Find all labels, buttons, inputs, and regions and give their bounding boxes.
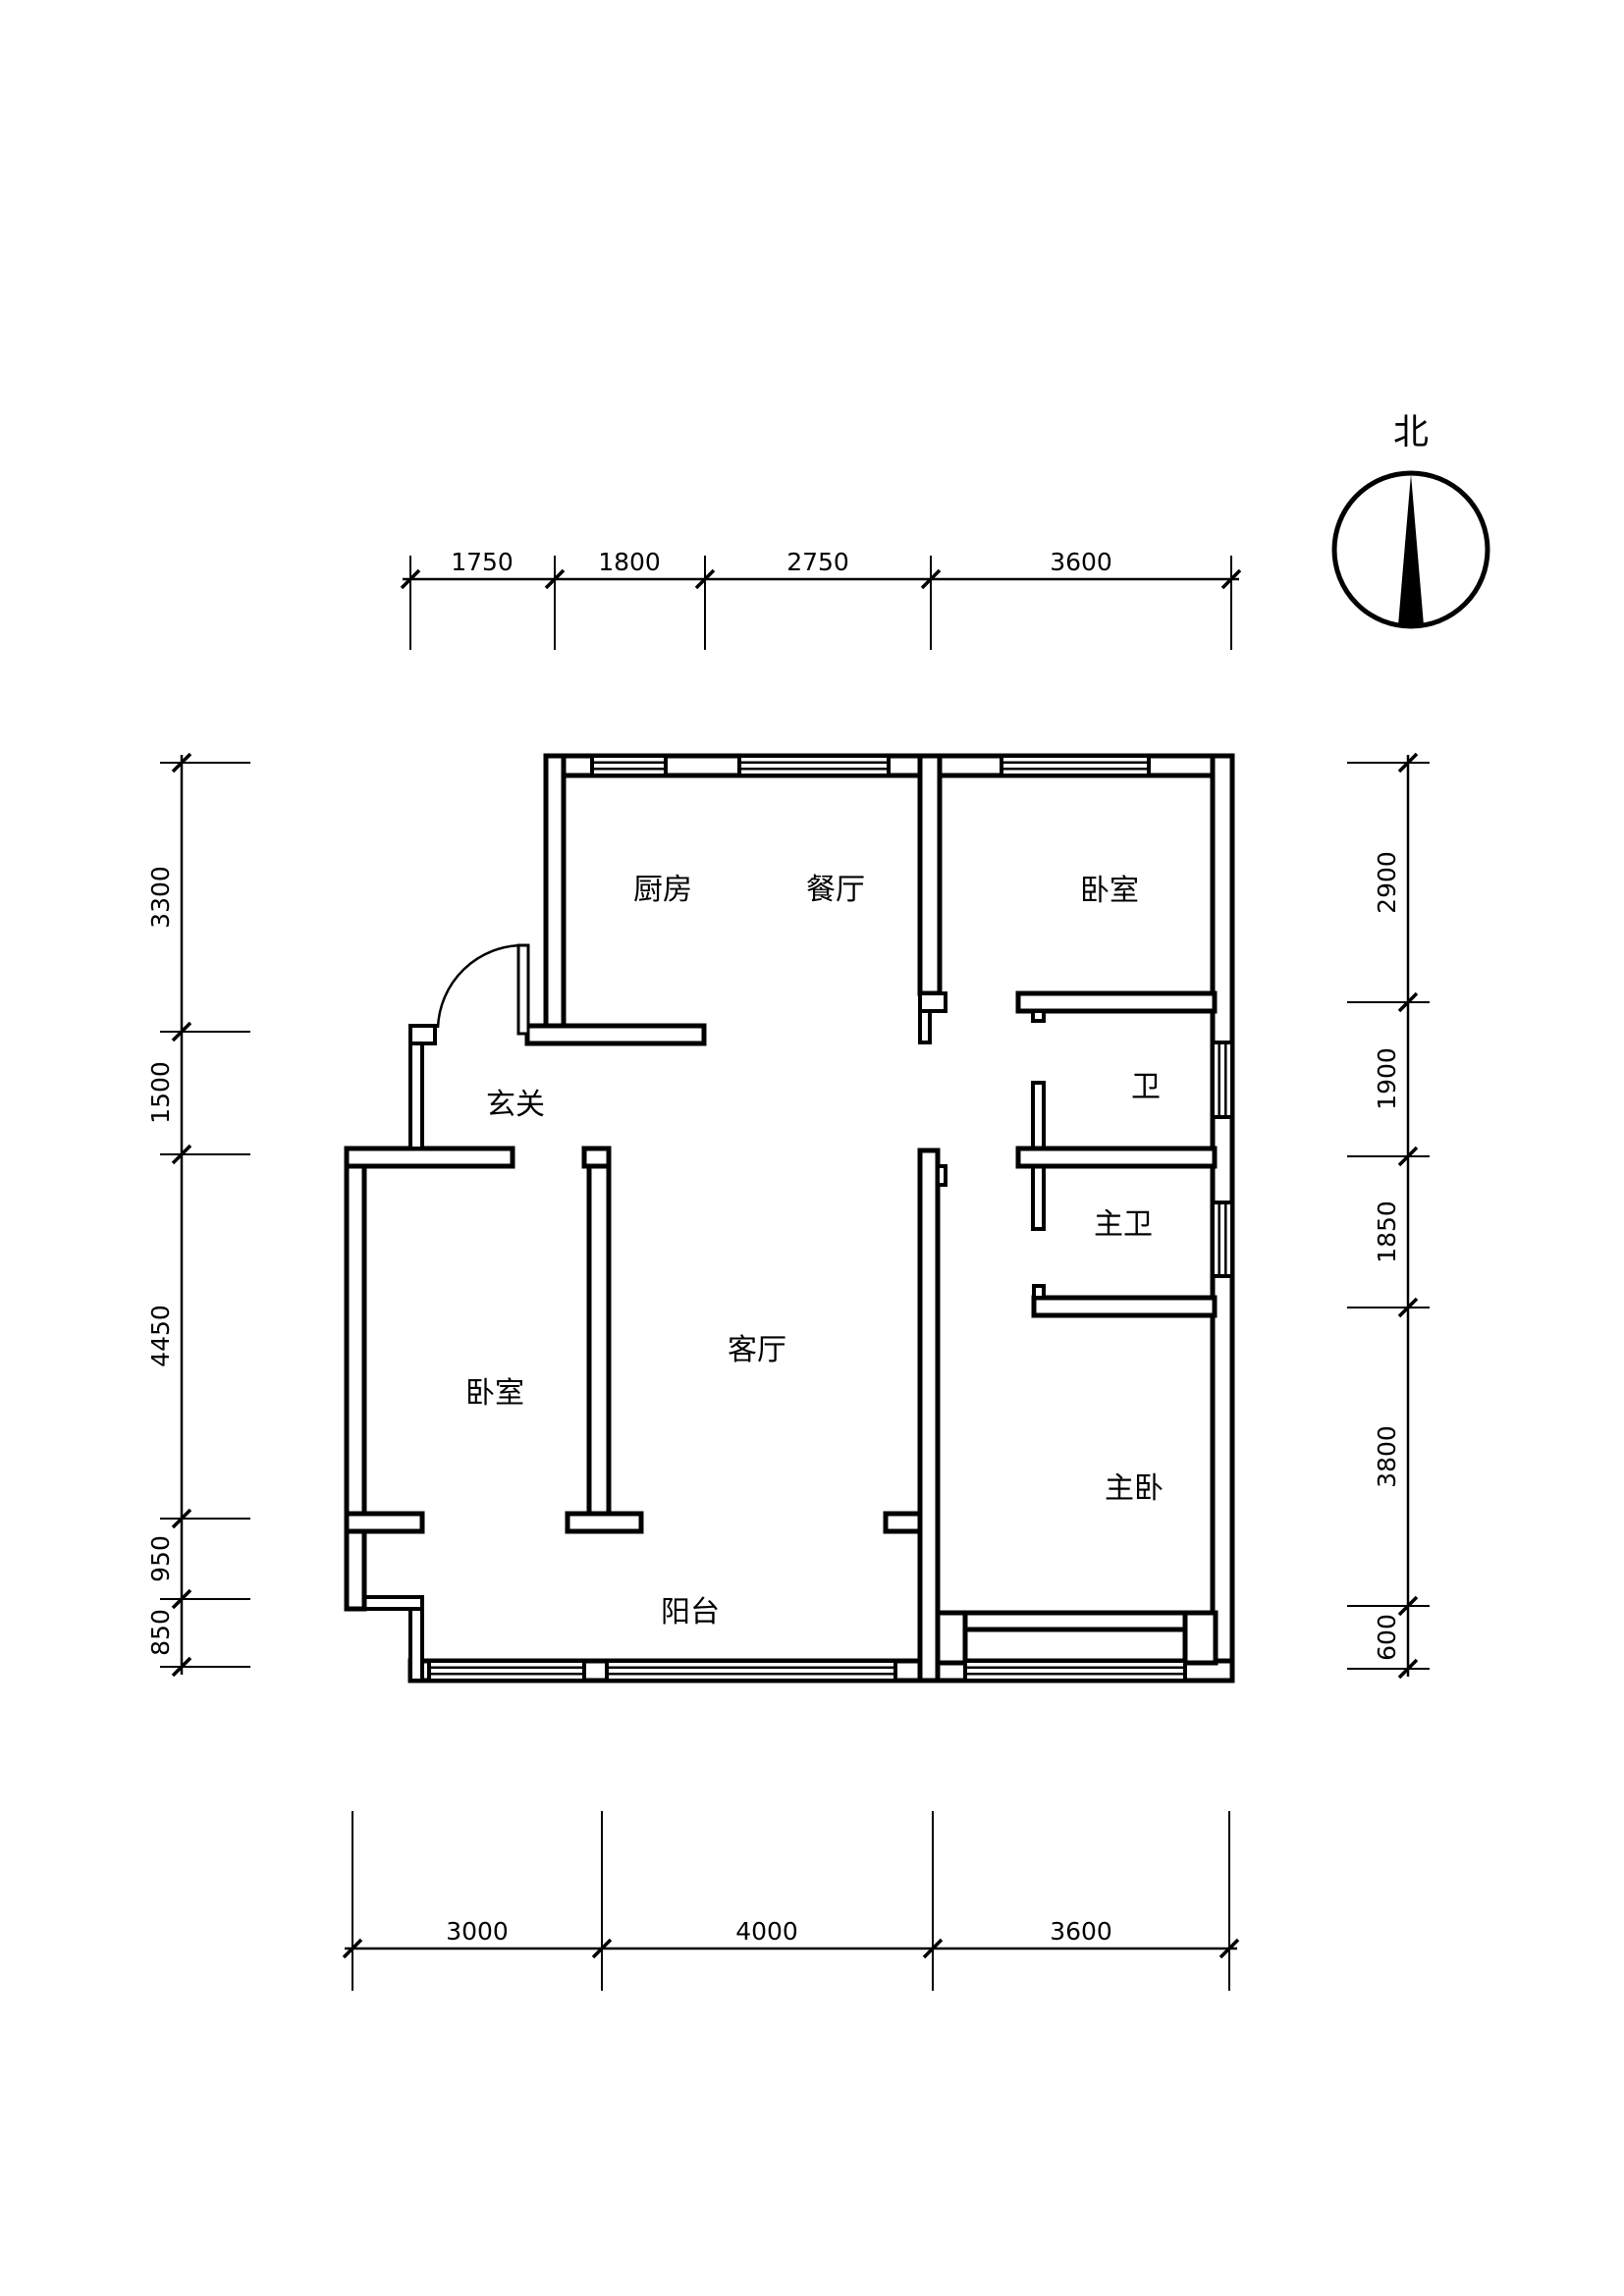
- dim-top-2: 2750: [786, 548, 849, 576]
- wall-living-right: [920, 1150, 938, 1681]
- room-label-entry: 玄关: [486, 1088, 545, 1122]
- dim-right-1: 1900: [1373, 1047, 1401, 1110]
- wall-balcony-stub: [886, 1514, 920, 1531]
- wall-bedroom-west: [347, 1148, 364, 1609]
- room-label-bath: 卫: [1131, 1070, 1161, 1104]
- wall-bedroom-w-bottom-stub: [347, 1514, 422, 1531]
- window-kitchen: [592, 756, 666, 775]
- dimension-bottom: 3000 4000 3600: [344, 1811, 1238, 1991]
- window-master-bath: [1213, 1202, 1232, 1276]
- wall-masterbath-bottom: [1034, 1298, 1215, 1315]
- room-label-living: 客厅: [728, 1333, 786, 1367]
- wall-bath-top: [1018, 993, 1215, 1011]
- wall-dining-divider: [920, 756, 940, 993]
- wall-bedroom-w-right: [589, 1148, 609, 1514]
- dim-bottom-0: 3000: [446, 1917, 509, 1946]
- wall-master-pier-right: [1185, 1613, 1216, 1663]
- window-bath: [1213, 1042, 1232, 1117]
- wall-bath-door-tab: [1033, 1011, 1044, 1021]
- dim-bottom-2: 3600: [1050, 1917, 1112, 1946]
- room-label-balcony: 阳台: [661, 1595, 720, 1629]
- dim-left-3: 950: [146, 1535, 175, 1582]
- dim-right-3: 3800: [1373, 1425, 1401, 1488]
- window-bedroom-ne: [1001, 756, 1149, 775]
- wall-bath-divider: [1018, 1148, 1215, 1166]
- dim-top-0: 1750: [451, 548, 514, 576]
- wall-kitchen-west: [546, 756, 564, 1043]
- wall-kitchen-bottom: [527, 1026, 704, 1043]
- dim-right-2: 1850: [1373, 1201, 1401, 1263]
- wall-master-bottom: [938, 1613, 1216, 1629]
- wall-masterbath-tab: [1034, 1286, 1044, 1298]
- wall-living-right-tab: [938, 1166, 946, 1185]
- wall-balcony-west: [410, 1607, 422, 1681]
- door-swing-arc: [438, 945, 523, 1028]
- room-label-bedroom-w: 卧室: [465, 1376, 524, 1411]
- wall-dining-divider-end: [920, 1011, 930, 1042]
- window-balcony-left: [429, 1661, 584, 1681]
- room-label-kitchen: 厨房: [633, 873, 692, 907]
- room-label-master-bedroom: 主卧: [1105, 1471, 1164, 1506]
- window-master-bedroom: [965, 1661, 1185, 1681]
- wall-entry-jamb: [410, 1026, 435, 1043]
- dim-left-4: 850: [146, 1609, 175, 1656]
- room-label-master-bath: 主卫: [1094, 1207, 1153, 1242]
- wall-bedroom-w-tbase: [568, 1514, 641, 1531]
- dim-top-1: 1800: [598, 548, 661, 576]
- dim-left-2: 4450: [146, 1305, 175, 1367]
- dimension-right: 2900 1900 1850 3800 600: [1347, 754, 1430, 1678]
- entry-door: [438, 945, 528, 1034]
- dimension-top: 1750 1800 2750 3600: [402, 548, 1240, 650]
- dim-bottom-1: 4000: [735, 1917, 798, 1946]
- room-label-bedroom-ne: 卧室: [1080, 874, 1139, 908]
- compass-north-label: 北: [1393, 412, 1429, 453]
- wall-bedroom-w-top: [347, 1148, 513, 1166]
- dim-right-4: 600: [1373, 1614, 1401, 1661]
- dim-right-0: 2900: [1373, 851, 1401, 914]
- wall-dining-divider-foot: [920, 993, 946, 1011]
- floor-plan-page: 北 1750 1800 2750 3600 3000 4000 3600: [0, 0, 1624, 2296]
- room-label-dining: 餐厅: [806, 873, 865, 907]
- dim-left-0: 3300: [146, 866, 175, 929]
- wall-bedroom-w-right-top: [584, 1148, 609, 1166]
- window-dining: [739, 756, 889, 775]
- window-balcony-right: [607, 1661, 895, 1681]
- north-needle-icon: [1398, 474, 1424, 625]
- door-leaf: [518, 945, 528, 1034]
- dim-top-3: 3600: [1050, 548, 1112, 576]
- dim-left-1: 1500: [146, 1061, 175, 1124]
- dimension-left: 3300 1500 4450 950 850: [146, 754, 250, 1676]
- floor-plan-drawing: 北 1750 1800 2750 3600 3000 4000 3600: [0, 0, 1624, 2296]
- compass: 北: [1334, 412, 1488, 626]
- wall-master-pier-left: [938, 1613, 965, 1663]
